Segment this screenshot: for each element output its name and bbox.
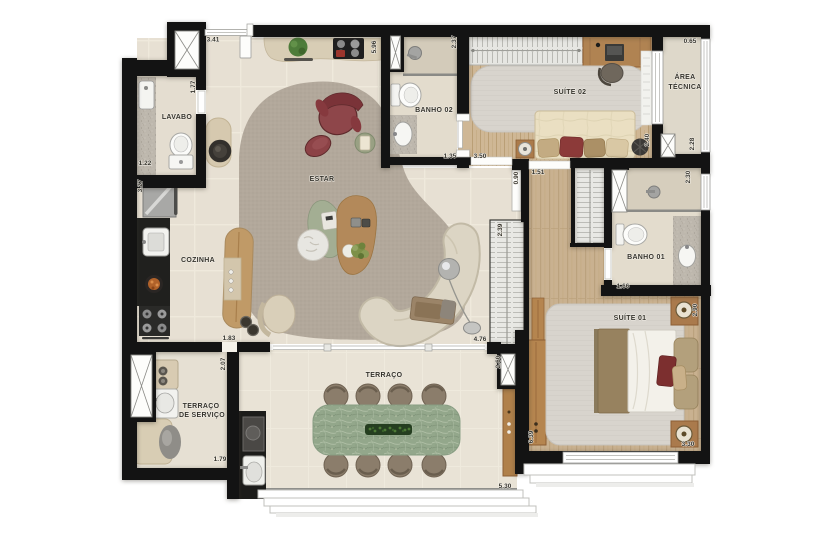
svg-text:ESTAR: ESTAR bbox=[310, 176, 335, 183]
svg-text:DE SERVIÇO: DE SERVIÇO bbox=[179, 412, 225, 419]
svg-text:2.60: 2.60 bbox=[495, 355, 502, 368]
svg-text:2.30: 2.30 bbox=[685, 170, 692, 183]
svg-text:2.90: 2.90 bbox=[692, 303, 699, 316]
svg-text:1.51: 1.51 bbox=[532, 169, 545, 176]
svg-text:BANHO 02: BANHO 02 bbox=[415, 107, 453, 114]
svg-text:0.90: 0.90 bbox=[513, 171, 520, 184]
svg-text:4.76: 4.76 bbox=[474, 336, 487, 343]
svg-text:2.37: 2.37 bbox=[451, 35, 458, 48]
svg-text:ÁREA: ÁREA bbox=[674, 72, 695, 81]
svg-text:2.40: 2.40 bbox=[644, 133, 651, 146]
svg-text:TERRAÇO: TERRAÇO bbox=[366, 372, 403, 379]
svg-text:5.96: 5.96 bbox=[371, 40, 378, 53]
svg-text:1.35: 1.35 bbox=[444, 153, 457, 160]
svg-text:BANHO 01: BANHO 01 bbox=[627, 254, 665, 261]
svg-text:3.27: 3.27 bbox=[137, 179, 144, 192]
svg-text:1.22: 1.22 bbox=[139, 160, 152, 167]
svg-text:1.66: 1.66 bbox=[617, 283, 630, 290]
svg-text:TÉCNICA: TÉCNICA bbox=[668, 82, 701, 91]
svg-text:3.50: 3.50 bbox=[474, 153, 487, 160]
svg-text:1.77: 1.77 bbox=[190, 80, 197, 93]
svg-text:6.39: 6.39 bbox=[528, 430, 535, 443]
svg-text:5.30: 5.30 bbox=[499, 483, 512, 490]
svg-text:0.65: 0.65 bbox=[684, 38, 697, 45]
svg-text:2.28: 2.28 bbox=[689, 137, 696, 150]
svg-text:TERRAÇO: TERRAÇO bbox=[183, 403, 220, 410]
svg-text:1.79: 1.79 bbox=[214, 456, 227, 463]
svg-text:3.41: 3.41 bbox=[207, 37, 220, 44]
svg-text:3.30: 3.30 bbox=[682, 441, 695, 448]
svg-text:1.83: 1.83 bbox=[223, 335, 236, 342]
svg-text:2.07: 2.07 bbox=[220, 357, 227, 370]
svg-text:SUÍTE 02: SUÍTE 02 bbox=[554, 87, 587, 96]
svg-text:SUÍTE 01: SUÍTE 01 bbox=[614, 313, 647, 322]
svg-text:2.39: 2.39 bbox=[497, 223, 504, 236]
svg-text:COZINHA: COZINHA bbox=[181, 257, 215, 264]
svg-text:LAVABO: LAVABO bbox=[162, 114, 193, 121]
